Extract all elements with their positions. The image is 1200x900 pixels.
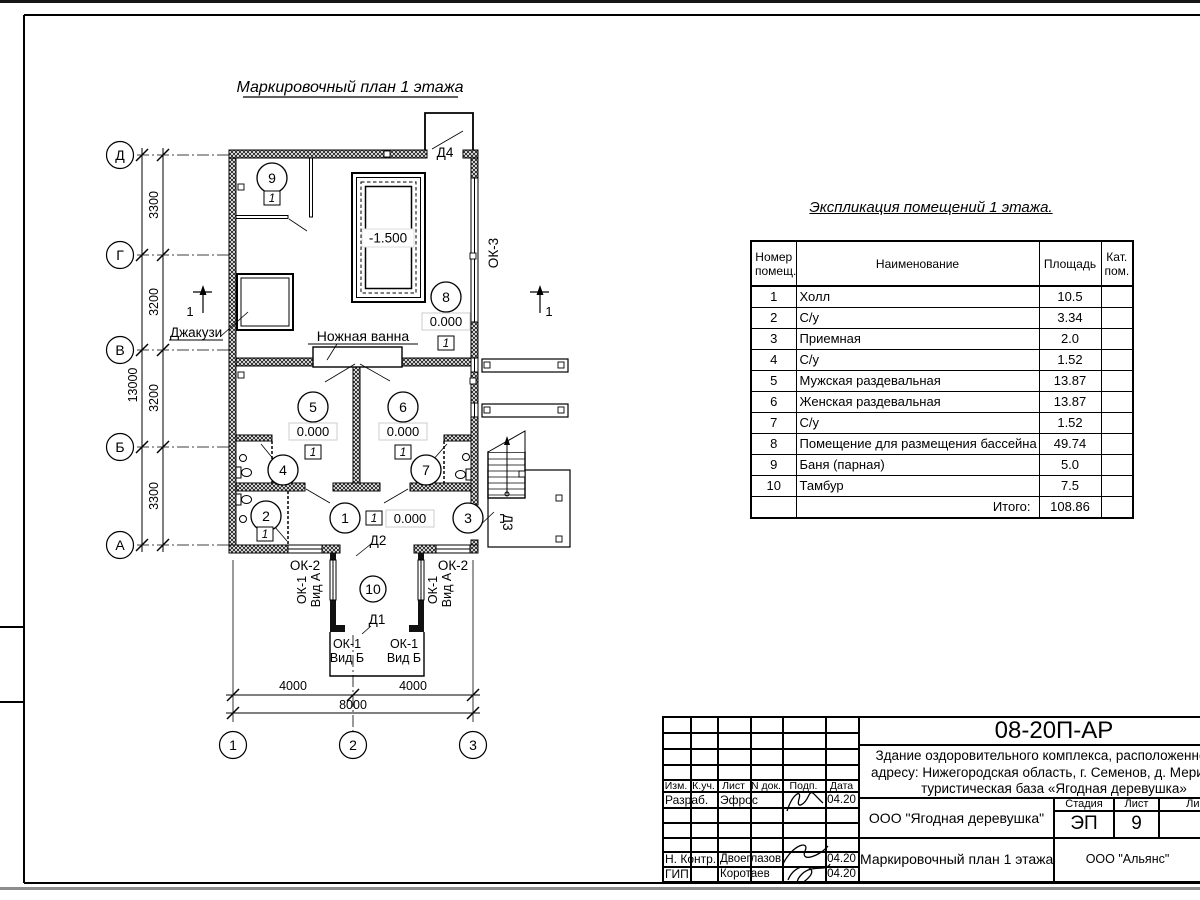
table-row: 10Тамбур7.5: [751, 475, 1133, 496]
room-circle-7: 7: [422, 462, 430, 478]
axis-number-3: 3: [469, 737, 477, 753]
table-row: 9Баня (парная)5.0: [751, 454, 1133, 475]
col-header-name: Наименование: [796, 241, 1039, 286]
sink: [240, 455, 247, 462]
foot-bath-label: Ножная ванна: [317, 328, 410, 344]
floor-mark: 1: [400, 447, 406, 459]
project-description-line3: туристическая база «Ягодная деревушка»: [858, 780, 1200, 797]
door-label-d2: Д2: [370, 533, 387, 548]
dim-bottom-total: 8000: [339, 698, 367, 712]
table-row: 5Мужская раздевальная13.87: [751, 370, 1133, 391]
window-label-ok3: ОК-3: [486, 238, 501, 268]
table-row: 4С/у1.52: [751, 349, 1133, 370]
window-label-vida-right: Вид А: [440, 572, 454, 607]
axis-letter-d: Д: [115, 147, 125, 163]
room-circle-6: 6: [399, 399, 407, 415]
room-circle-2: 2: [262, 508, 270, 524]
project-description-line1: Здание оздоровительного комплекса, распо…: [858, 747, 1200, 764]
table-row: 6Женская раздевальная13.87: [751, 391, 1133, 412]
axis-lines: [137, 155, 353, 731]
project-description-line2: адресу: Нижегородская область, г. Семено…: [858, 764, 1200, 781]
axis-number-2: 2: [349, 737, 357, 753]
table-row: 1Холл10.5: [751, 286, 1133, 307]
sheet-top-edge: [0, 0, 1200, 3]
sheet-bottom-edge: [0, 887, 1200, 890]
section-mark-label-left: 1: [186, 304, 193, 319]
table-row: 3Приемная2.0: [751, 328, 1133, 349]
room-circle-9: 9: [268, 170, 276, 186]
elevation-room6: 0.000: [387, 424, 420, 439]
door-label-d1: Д1: [369, 612, 386, 627]
name-gip: Коротаев: [720, 868, 782, 881]
window-label-vida-left: Вид А: [309, 572, 323, 607]
explication-title: Экспликация помещений 1 этажа.: [740, 199, 1122, 216]
name-nkontr: Двоеглазов: [720, 853, 782, 866]
elevation-room8: 0.000: [430, 314, 463, 329]
table-row: 2С/у3.34: [751, 307, 1133, 328]
stairs: [488, 431, 525, 498]
floor-mark: 1: [371, 513, 377, 525]
toilet-tank: [236, 467, 241, 478]
dim-bottom-1: 4000: [279, 679, 307, 693]
total-label: Итого:: [796, 496, 1039, 518]
sheet-number: 9: [1115, 811, 1158, 837]
window-label-ok1b-left: ОК-1: [333, 637, 361, 651]
elevation-pool: -1.500: [369, 231, 407, 246]
toilet-bowl: [242, 469, 252, 477]
room-circle-3: 3: [464, 510, 472, 526]
sink: [463, 454, 470, 461]
toilet-bowl: [242, 496, 252, 504]
window-label-vidb-right: Вид Б: [387, 651, 421, 665]
date-razrab: 04.20: [825, 793, 858, 807]
total-value: 108.86: [1039, 496, 1101, 518]
room-circle-4: 4: [279, 462, 287, 478]
window-label-ok1b-right: ОК-1: [390, 637, 418, 651]
col-kuch: К.уч.: [690, 780, 717, 791]
room-circle-10: 10: [365, 581, 381, 597]
jacuzzi-label: Джакузи: [170, 325, 222, 340]
name-razrab: Эфрос: [720, 793, 782, 807]
doc-number: 08-20П-АР: [858, 717, 1200, 744]
jacuzzi: [237, 274, 293, 330]
col-data: Дата: [825, 780, 858, 791]
col-header-area: Площадь: [1039, 241, 1101, 286]
window-label-vidb-left: Вид Б: [330, 651, 364, 665]
explication-table: Номерпомещ. Наименование Площадь Кат.пом…: [750, 240, 1134, 519]
role-nkontr: Н. Контр.: [665, 853, 720, 866]
dim-left-4: 3300: [147, 482, 161, 510]
door-label-d3: Д3: [500, 514, 515, 531]
dim-left-1: 3300: [147, 191, 161, 219]
floor-mark: 1: [269, 193, 275, 205]
door-label-d4: Д4: [437, 145, 454, 160]
section-mark-label-right: 1: [545, 304, 552, 319]
room-circle-1: 1: [341, 510, 349, 526]
axis-number-1: 1: [229, 737, 237, 753]
floor-mark: 1: [262, 529, 268, 541]
drawing-title: Маркировочный план 1 этажа: [860, 838, 1053, 881]
table-row: 7С/у1.52: [751, 412, 1133, 433]
sheet-label: Лист: [1115, 798, 1158, 810]
elevation-marks: -1.500 0.000 0.000 0.000 0.000: [289, 229, 470, 527]
axis-letter-v: В: [115, 342, 124, 358]
dim-bottom-2: 4000: [399, 679, 427, 693]
col-header-category: Кат.пом.: [1101, 241, 1133, 286]
sink: [240, 516, 247, 523]
foot-bath: [313, 347, 402, 367]
window-label-ok2-right: ОК-2: [438, 558, 468, 573]
contractor-org: ООО "Альянс": [1055, 838, 1200, 881]
dim-left-2: 3200: [147, 288, 161, 316]
window-label-ok2-left: ОК-2: [290, 558, 320, 573]
axis-letter-a: А: [115, 537, 125, 553]
col-izm: Изм.: [662, 780, 690, 791]
axis-letter-b: Б: [115, 439, 124, 455]
signature-razrab: [784, 787, 826, 815]
stage-value: ЭП: [1055, 811, 1113, 837]
toilet-tank: [236, 494, 241, 505]
floor-mark: 1: [310, 447, 316, 459]
signature-nkontr-gip: [778, 838, 836, 890]
role-gip: ГИП: [665, 868, 717, 881]
room-circle-8: 8: [442, 289, 450, 305]
dim-left-3: 3200: [147, 384, 161, 412]
dim-left-total: 13000: [126, 368, 140, 403]
col-ndoc: N док.: [750, 780, 782, 791]
stage-label: Стадия: [1055, 798, 1113, 810]
room-circle-5: 5: [309, 399, 317, 415]
table-row: 8Помещение для размещения бассейна49.74: [751, 433, 1133, 454]
col-header-number: Номерпомещ.: [751, 241, 796, 286]
role-razrab: Разраб.: [665, 793, 717, 807]
drawing-sheet: { "plan": { "title": "Маркировочный план…: [0, 0, 1200, 900]
toilet-tank: [466, 469, 471, 480]
window-label-ok1-left: ОК-1: [295, 576, 309, 604]
axis-letter-g: Г: [116, 247, 124, 263]
floor-mark: 1: [443, 338, 449, 350]
col-list: Лист: [717, 780, 750, 791]
elevation-room1: 0.000: [394, 511, 427, 526]
elevation-room5: 0.000: [297, 424, 330, 439]
toilet-bowl: [456, 471, 466, 479]
plan-title: Маркировочный план 1 этажа: [236, 79, 463, 96]
table-total-row: Итого:108.86: [751, 496, 1133, 518]
window-label-ok1-right: ОК-1: [426, 576, 440, 604]
client-org: ООО "Ягодная деревушка": [860, 799, 1053, 837]
sheets-label: Листов: [1160, 798, 1200, 810]
